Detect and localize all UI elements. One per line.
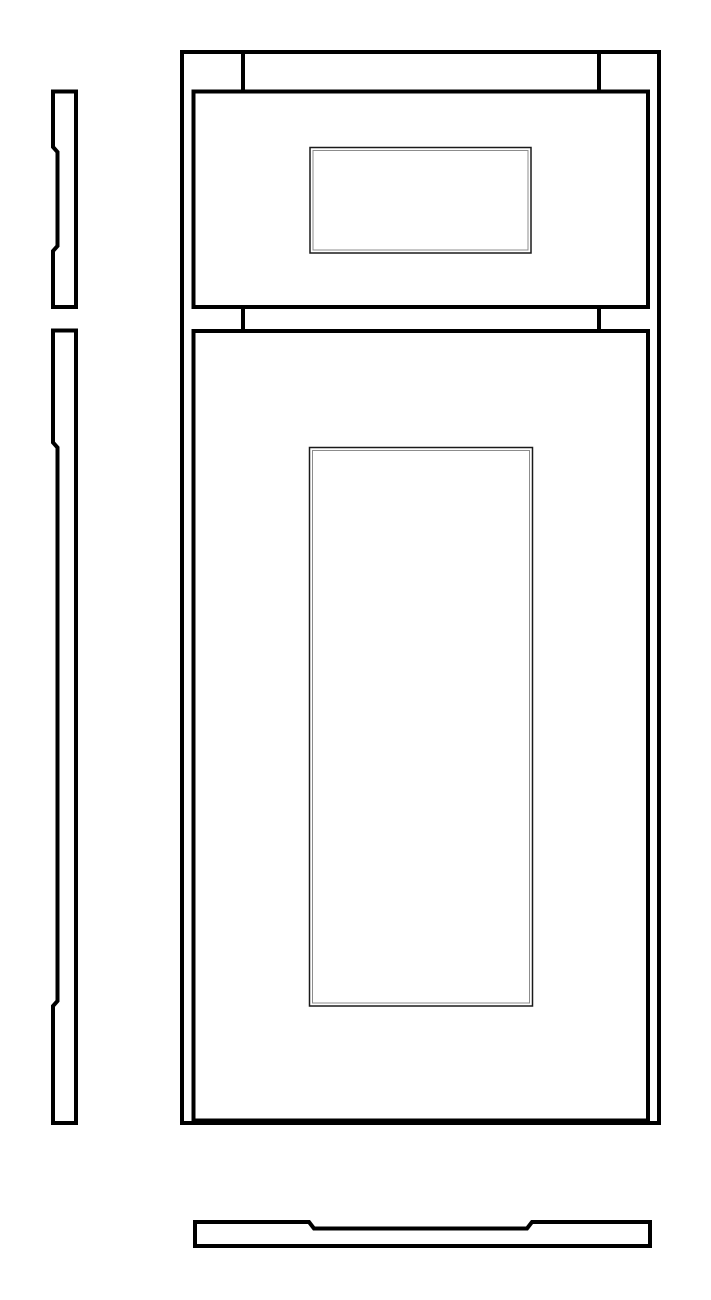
drawing-canvas	[0, 0, 711, 1300]
drawer-side-profile	[53, 92, 76, 308]
drawer-recessed-panel-inner	[313, 151, 528, 251]
drawer-recessed-panel-outer	[310, 148, 531, 254]
door-top-profile	[195, 1222, 650, 1246]
cabinet-face-outline	[182, 52, 659, 1123]
door-side-profile	[53, 331, 76, 1124]
technical-drawing-svg	[0, 0, 711, 1300]
drawer-front-outline	[194, 92, 649, 308]
door-recessed-panel-inner	[313, 451, 530, 1004]
door-recessed-panel-outer	[310, 448, 533, 1007]
door-outline	[194, 331, 649, 1121]
